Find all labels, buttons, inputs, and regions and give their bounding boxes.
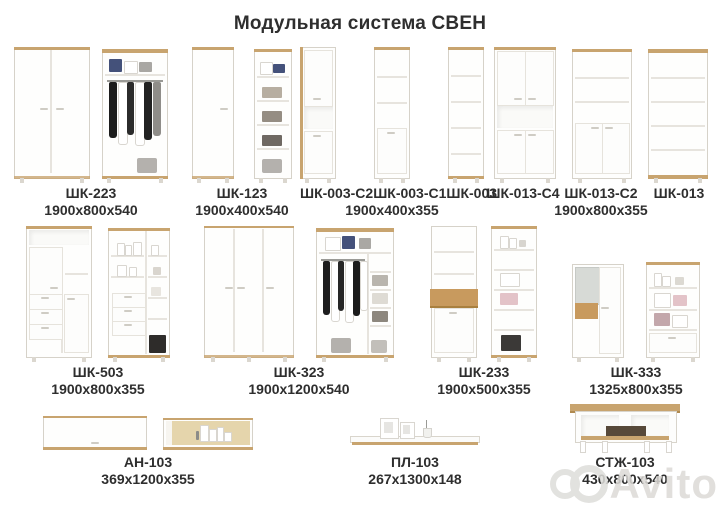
codes-shk003: ШК-003-С2 ШК-003-С1 ШК-003: [300, 185, 484, 202]
code-shk003-c2: ШК-003-С2: [300, 185, 373, 202]
dims-an103: 369x1200x355: [26, 471, 270, 487]
group-shk323: ШК-323 1900x1200x540: [192, 227, 406, 397]
stzh103-images: [545, 402, 705, 454]
shk333-images: [558, 227, 714, 364]
pl103-shelf-image: [350, 416, 480, 452]
avito-watermark: Avito: [550, 463, 718, 505]
code-shk233: ШК-233: [416, 364, 552, 381]
watermark-text: Avito: [610, 463, 718, 505]
shk333-closed-image: [572, 264, 624, 358]
code-shk323: ШК-323: [192, 364, 406, 381]
code-an103: АН-103: [26, 454, 270, 471]
watermark-circle-icon: [570, 465, 608, 503]
code-shk333: ШК-333: [558, 364, 714, 381]
shk503-images: [14, 227, 182, 364]
shk233-open-image: [491, 226, 537, 358]
shk223-closed-image: [14, 47, 90, 179]
codes-shk013: ШК-013-С4 ШК-013-С2 ШК-013: [484, 185, 718, 202]
shk223-images: [2, 48, 180, 185]
an103-open-image: [163, 418, 253, 450]
dims-shk123: 1900x400x540: [182, 202, 302, 218]
shk503-open-image: [108, 228, 170, 358]
shk003-images: [300, 48, 484, 185]
group-shk503: ШК-503 1900x800x355: [14, 227, 182, 397]
group-shk003: ШК-003-С2 ШК-003-С1 ШК-003 1900x400x355: [300, 48, 484, 218]
code-shk013: ШК-013: [640, 185, 718, 202]
group-shk013: ШК-013-С4 ШК-013-С2 ШК-013 1900x800x355: [484, 48, 718, 218]
code-shk003-c1: ШК-003-С1: [373, 185, 446, 202]
dims-shk233: 1900x500x355: [416, 381, 552, 397]
shk323-closed-image: [204, 226, 294, 358]
code-shk013-c4: ШК-013-С4: [484, 185, 562, 202]
shk123-closed-image: [192, 47, 234, 179]
code-pl103: ПЛ-103: [330, 454, 500, 471]
dims-shk503: 1900x800x355: [14, 381, 182, 397]
catalog-page: Модульная система СВЕН: [0, 0, 720, 509]
shk223-open-image: [102, 49, 168, 179]
group-shk333: ШК-333 1325x800x355: [558, 227, 714, 397]
shk013-c2-image: [572, 49, 632, 179]
an103-closed-image: [43, 416, 147, 450]
dims-shk013: 1900x800x355: [484, 202, 718, 218]
group-shk233: ШК-233 1900x500x355: [416, 227, 552, 397]
shk323-open-image: [316, 228, 394, 358]
code-shk223: ШК-223: [2, 185, 180, 202]
shk333-open-image: [646, 262, 700, 358]
dims-shk333: 1325x800x355: [558, 381, 714, 397]
page-title: Модульная система СВЕН: [0, 13, 720, 35]
group-shk123: ШК-123 1900x400x540: [182, 48, 302, 218]
dims-shk323: 1900x1200x540: [192, 381, 406, 397]
dims-shk223: 1900x800x540: [2, 202, 180, 218]
pl103-images: [330, 404, 500, 454]
group-an103: АН-103 369x1200x355: [26, 404, 270, 487]
shk013-images: [484, 48, 718, 185]
stzh103-table-image: [570, 404, 680, 454]
group-shk223: ШК-223 1900x800x540: [2, 48, 180, 218]
shk233-closed-image: [431, 226, 477, 358]
shk013-open-image: [648, 49, 708, 179]
shk013-c4-image: [494, 47, 556, 179]
dims-pl103: 267x1300x148: [330, 471, 500, 487]
shk123-open-image: [254, 49, 292, 179]
shk123-images: [182, 48, 302, 185]
shk003-open-image: [448, 47, 484, 179]
shk323-images: [192, 227, 406, 364]
group-pl103: ПЛ-103 267x1300x148: [330, 404, 500, 487]
shk003-c2-image: [300, 47, 336, 179]
code-shk013-c2: ШК-013-С2: [562, 185, 640, 202]
shk233-images: [416, 227, 552, 364]
dims-shk003: 1900x400x355: [300, 202, 484, 218]
shk503-closed-image: [26, 226, 92, 358]
an103-images: [26, 404, 270, 454]
code-shk123: ШК-123: [182, 185, 302, 202]
code-shk503: ШК-503: [14, 364, 182, 381]
shk003-c1-image: [374, 47, 410, 179]
